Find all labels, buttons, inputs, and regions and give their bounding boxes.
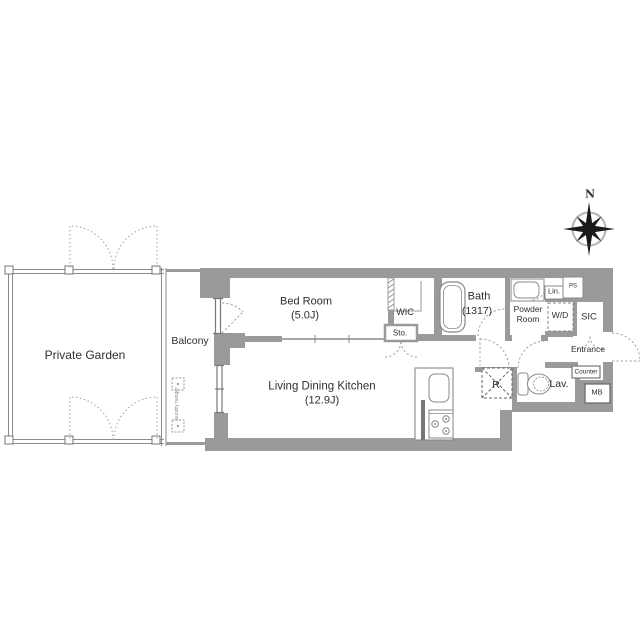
stove-icon xyxy=(429,410,453,438)
balcony-label: Balcony xyxy=(171,335,208,347)
kitchen-sink-icon xyxy=(429,374,449,402)
pipe-space-label: PS xyxy=(569,284,577,291)
bedroom-label: Bed Room xyxy=(280,296,332,309)
counter-label: Counter xyxy=(574,368,597,375)
ldk-window xyxy=(215,365,225,413)
compass-icon xyxy=(563,202,615,256)
floor-plan-image: N Private Garden Balcony laundry hanger … xyxy=(0,0,640,640)
refrigerator-label: R xyxy=(492,379,500,391)
powder-room-label-line2: Room xyxy=(514,315,543,325)
ldk-size-label: (12.9J) xyxy=(305,395,339,408)
washer-dryer-label: W/D xyxy=(552,311,569,321)
linen-label: Lin. xyxy=(548,288,560,297)
bedroom-balcony-door-arc xyxy=(222,303,243,333)
lavatory-label: Lav. xyxy=(549,378,568,390)
washbasin-icon xyxy=(511,279,544,301)
bath-size-label: (1317) xyxy=(462,305,492,317)
sliding-partition xyxy=(282,335,388,343)
entrance-label: Entrance xyxy=(571,345,605,355)
laundry-hanger-label: laundry hanger xyxy=(175,387,181,420)
private-garden-label: Private Garden xyxy=(45,349,126,363)
sto-label: Sto. xyxy=(393,328,407,337)
meter-box-label: MB xyxy=(591,389,602,398)
shoes-closet-label: SIC xyxy=(581,313,597,324)
garden-gate-arcs xyxy=(70,226,157,440)
wic-hatch-wall xyxy=(388,278,394,310)
powder-room-label: Powder Room xyxy=(514,305,543,325)
wic-label: WIC xyxy=(396,307,414,317)
toilet-icon xyxy=(518,373,551,395)
ldk-label: Living Dining Kitchen xyxy=(268,380,375,393)
bath-label: Bath xyxy=(468,291,491,304)
lav-door-arc xyxy=(518,341,545,368)
bedroom-window xyxy=(213,298,223,334)
bedroom-size-label: (5.0J) xyxy=(291,310,319,323)
sto-door-arcs xyxy=(385,341,417,357)
entrance-door-arc xyxy=(612,333,640,361)
floor-plan-drawing xyxy=(0,0,640,640)
kitchen-wall-stub xyxy=(421,400,425,440)
compass-north-label: N xyxy=(585,189,595,202)
hall-door-arc xyxy=(480,338,509,368)
